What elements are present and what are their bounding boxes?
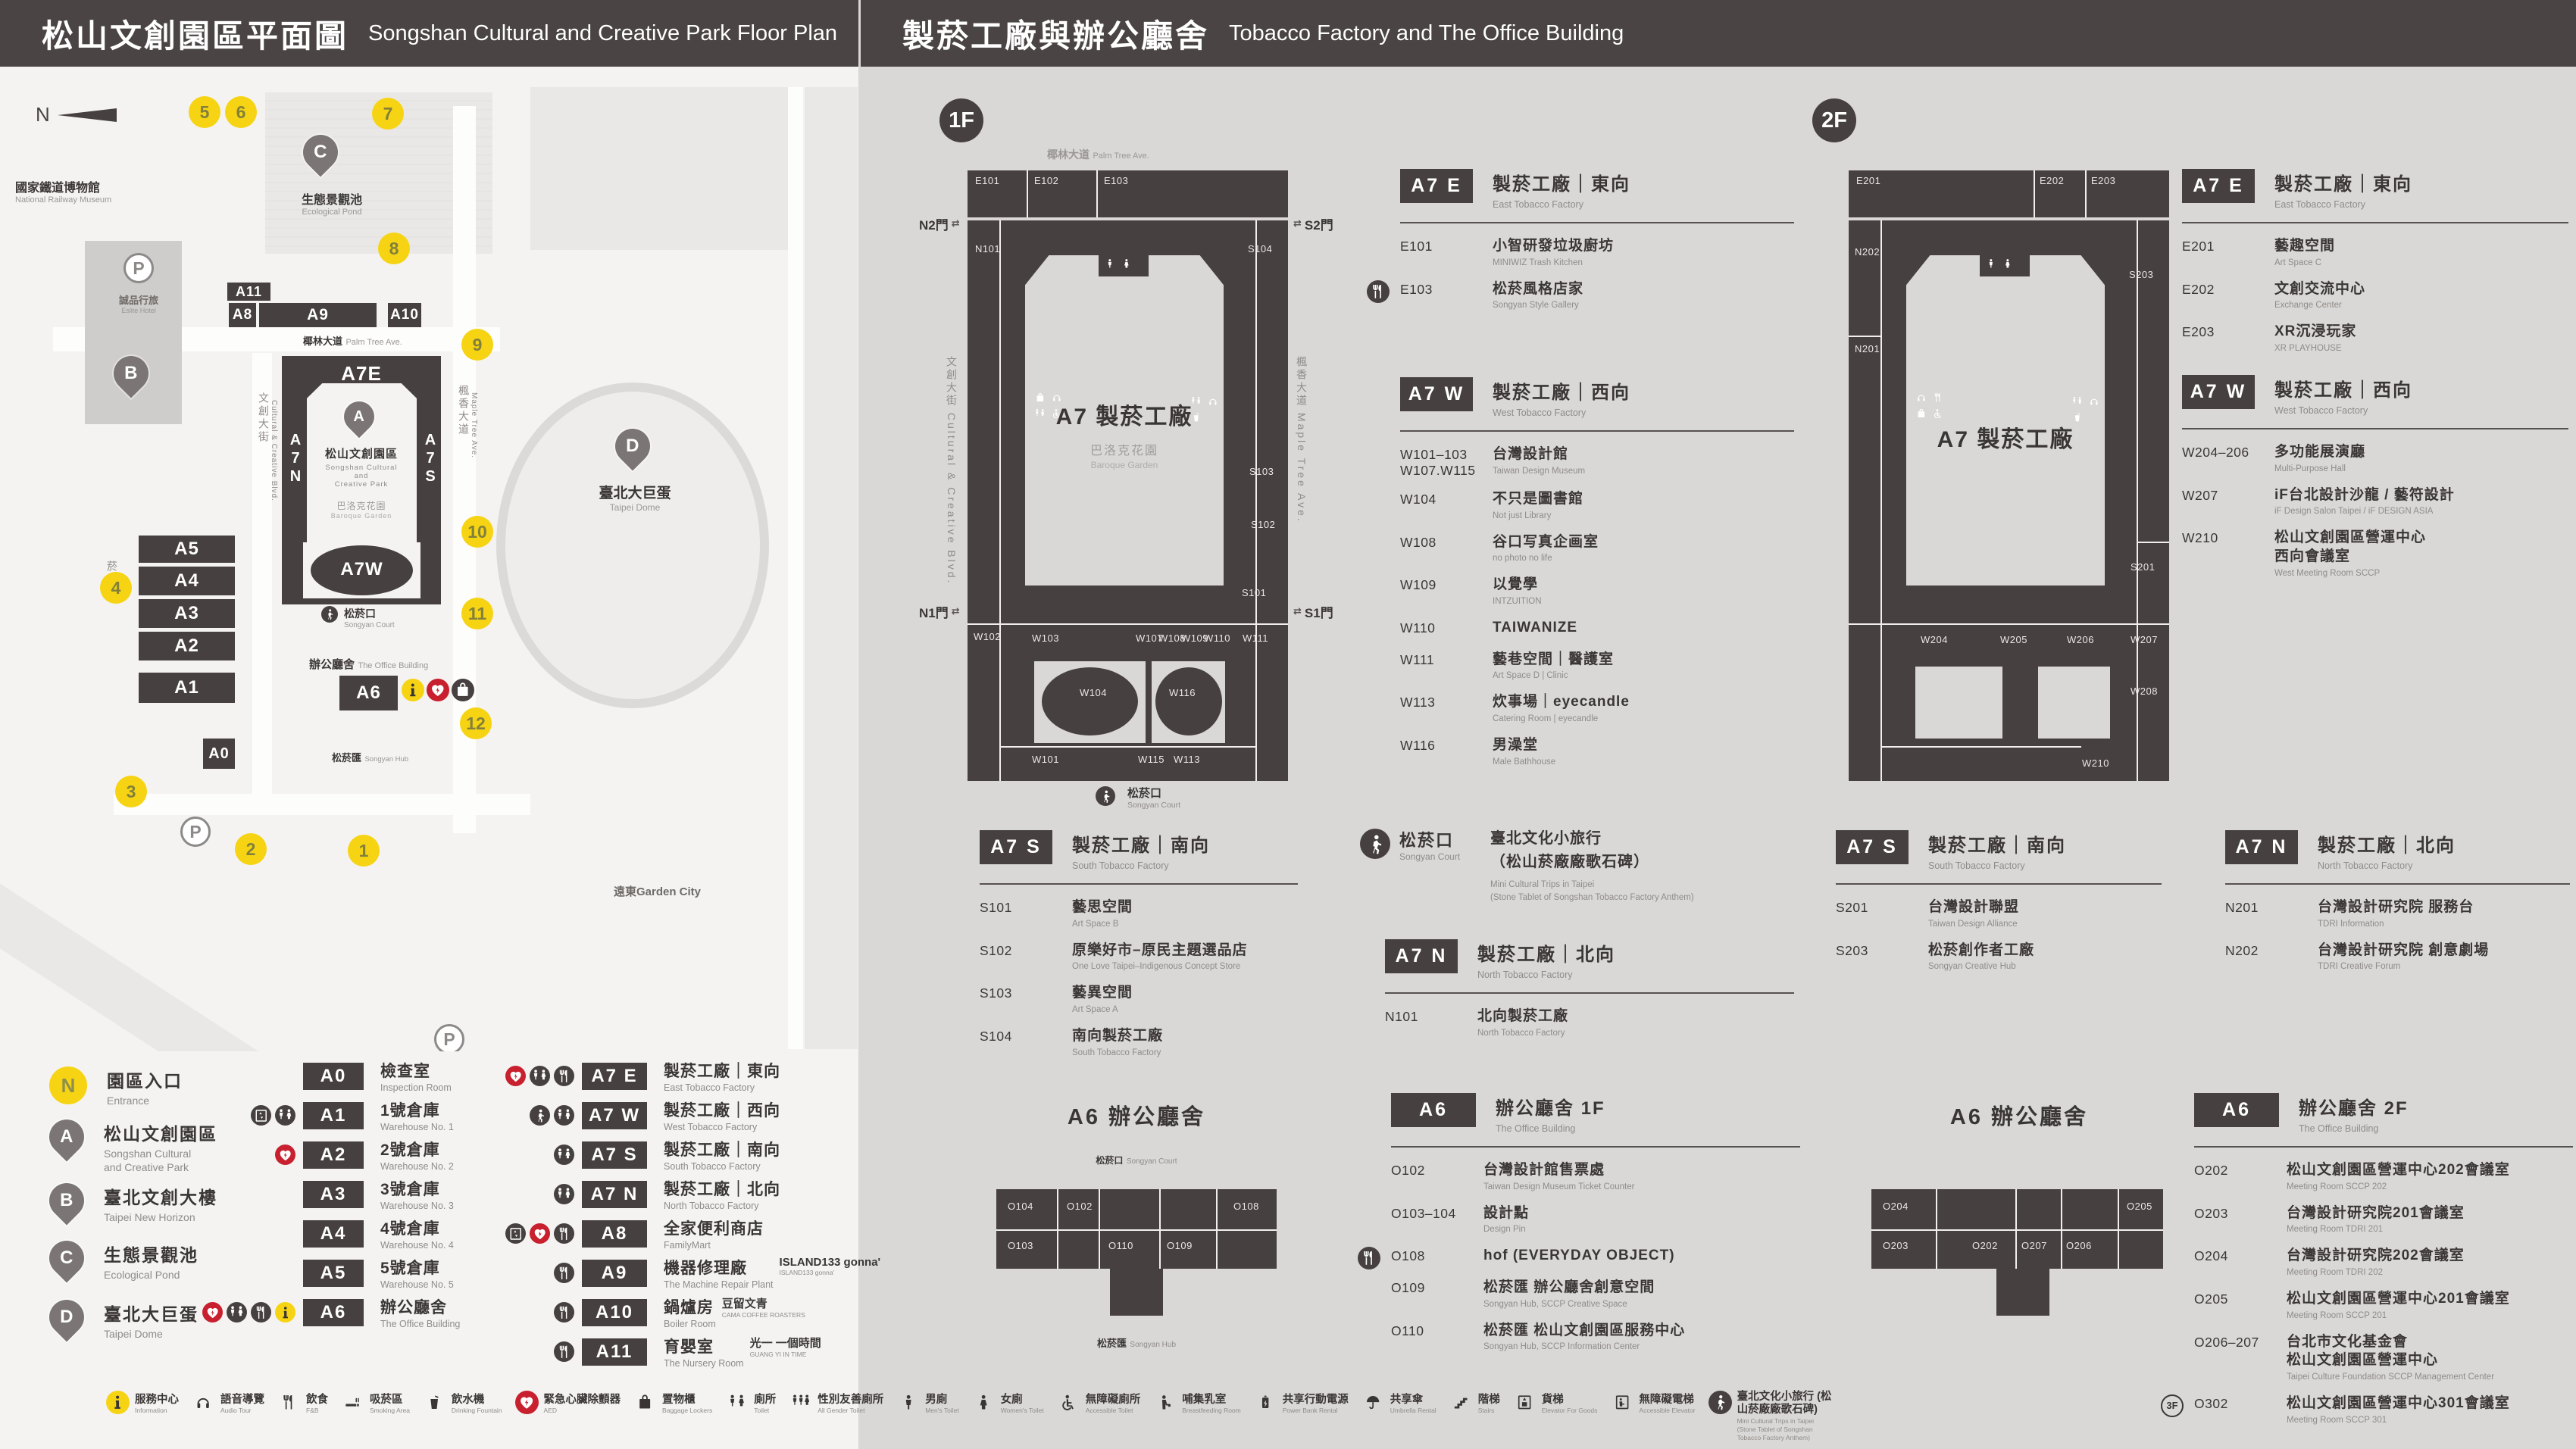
a7s-map-label: A7S bbox=[421, 432, 439, 486]
nursing-icon bbox=[1153, 1391, 1177, 1414]
legend-building-row: A7 S 製菸工廠｜南向 South Tobacco Factory bbox=[468, 1141, 880, 1169]
facility-item: 廁所 Toilet bbox=[725, 1391, 776, 1442]
palm-ave-1f-label: 椰林大道 Palm Tree Ave. bbox=[1047, 147, 1149, 162]
room-entry: W111 藝巷空間｜醫護室 Art Space D | Clinic bbox=[1400, 651, 1794, 682]
room-label: W102 bbox=[974, 631, 1001, 642]
room-label: W101 bbox=[1032, 754, 1059, 765]
building-a11: A11 bbox=[227, 283, 270, 301]
entrance-number: 6 bbox=[225, 96, 257, 128]
room-label: O102 bbox=[1067, 1201, 1093, 1212]
entrance-number: 4 bbox=[100, 572, 132, 604]
pin-b-icon: B bbox=[42, 1176, 91, 1225]
room-entry: O110 松菸匯 松山文創園區服務中心 Songyan Hub, SCCP In… bbox=[1391, 1322, 1800, 1354]
legend-buildings-2: A7 E 製菸工廠｜東向 East Tobacco Factory A7 W 製… bbox=[468, 1062, 880, 1377]
gate-n2: N2門⇄ bbox=[919, 214, 960, 233]
room-entry: W210 松山文創園區營運中心西向會議室 West Meeting Room S… bbox=[2182, 529, 2568, 579]
pin-icon: N bbox=[49, 1066, 87, 1104]
facility-item: 置物櫃 Baggage Lockers bbox=[633, 1391, 712, 1442]
trip-icon bbox=[1708, 1391, 1732, 1414]
parking-icon: P bbox=[180, 817, 211, 847]
person-icon bbox=[1984, 256, 1998, 270]
pin-icon: D bbox=[49, 1300, 84, 1335]
locker-icon bbox=[452, 679, 474, 701]
entrance-number: 1 bbox=[348, 835, 380, 867]
a7e-map-label: A7E bbox=[282, 362, 441, 386]
building-a4: A4 bbox=[139, 567, 235, 595]
entrance-number: 5 bbox=[189, 96, 220, 128]
accelev-icon bbox=[1610, 1391, 1633, 1414]
room-label: E201 bbox=[1856, 175, 1880, 186]
legend-building-row: A9 機器修理廠 The Machine Repair Plant ISLAND… bbox=[468, 1259, 880, 1287]
entrance-number: 11 bbox=[461, 598, 493, 629]
compass: N bbox=[36, 103, 117, 126]
room-entry: N202 台灣設計研究院 創意劇場 TDRI Creative Forum bbox=[2225, 942, 2570, 973]
aed-icon bbox=[505, 1066, 526, 1086]
info-icon bbox=[402, 679, 424, 701]
person-icon bbox=[896, 1391, 920, 1414]
facility-item: 女廁 Women's Toilet bbox=[972, 1391, 1044, 1442]
entrance-n-icon: N bbox=[49, 1066, 87, 1104]
legend-building-row: A5 5號倉庫 Warehouse No. 5 bbox=[182, 1259, 460, 1287]
room-label: S102 bbox=[1251, 519, 1275, 530]
smoking-icon bbox=[341, 1391, 364, 1414]
room-label: E102 bbox=[1034, 175, 1058, 186]
person-icon bbox=[1102, 256, 1117, 270]
legend-building-row: A3 3號倉庫 Warehouse No. 3 bbox=[182, 1180, 460, 1208]
room-entry: W110 TAIWANIZE bbox=[1400, 619, 1794, 639]
facility-item: 性別友善廁所 All Gender Toilet bbox=[789, 1391, 883, 1442]
songyan-court-map bbox=[321, 606, 338, 623]
room-label: O202 bbox=[1972, 1240, 1998, 1251]
room-label: W204 bbox=[1921, 634, 1948, 645]
aed-icon bbox=[515, 1391, 539, 1414]
room-label: S201 bbox=[2131, 561, 2155, 573]
section-a7w-1f: A7 W 製菸工廠｜西向West Tobacco Factory W101–10… bbox=[1400, 377, 1794, 779]
legend-building-row: A10 鍋爐房 Boiler Room 豆留文青CAMA COFFEE ROAS… bbox=[468, 1298, 880, 1326]
room-entry: S101 藝思空間 Art Space B bbox=[980, 898, 1298, 930]
fnb-icon bbox=[554, 1223, 574, 1244]
room-label: W103 bbox=[1032, 632, 1059, 644]
eslite-label: 誠品行旅 Eslite Hotel bbox=[119, 292, 158, 314]
section-a7e-1f: A7 E 製菸工廠｜東向East Tobacco Factory E101 小智… bbox=[1400, 169, 1794, 323]
right-header: 製菸工廠與辦公廳舍 Tobacco Factory and The Office… bbox=[861, 0, 2576, 67]
legend-pin-row: D 臺北大巨蛋 Taipei Dome bbox=[49, 1300, 199, 1341]
room-entry: O205 松山文創園區營運中心201會議室 Meeting Room SCCP … bbox=[2194, 1290, 2573, 1322]
a6-plan-2f: A6 辦公廳舍 O204O205O203O202O207O206 bbox=[1860, 1095, 2178, 1371]
building-a0: A0 bbox=[203, 739, 235, 769]
headset-icon bbox=[192, 1391, 215, 1414]
plan-icon-cluster bbox=[2070, 394, 2102, 424]
room-entry: O108 hof (EVERYDAY OBJECT) bbox=[1391, 1247, 1800, 1267]
facility-item: 共享行動電源 Power Bank Rental bbox=[1254, 1391, 1349, 1442]
facility-item: 飲水機 Drinking Fountain bbox=[423, 1391, 502, 1442]
toilet-icon bbox=[725, 1391, 749, 1414]
court-below-label: 松菸口 Songyan Court bbox=[1127, 785, 1180, 810]
facility-item: 臺北文化小旅行 (松山菸廠廠歌石碑) Mini Cultural Trips i… bbox=[1708, 1391, 1841, 1442]
stairs-icon bbox=[1449, 1391, 1473, 1414]
room-label: S203 bbox=[2129, 269, 2153, 280]
legend-building-row: A2 2號倉庫 Warehouse No. 2 bbox=[182, 1141, 460, 1169]
entrance-number: 7 bbox=[372, 98, 404, 130]
room-label: W115 bbox=[1138, 754, 1165, 765]
facility-item: 男廁 Men's Toilet bbox=[896, 1391, 958, 1442]
room-entry: O204 台灣設計研究院202會議室 Meeting Room TDRI 202 bbox=[2194, 1247, 2573, 1279]
facility-item: 哺集乳室 Breastfeeding Room bbox=[1153, 1391, 1241, 1442]
floor-plan-1f: A7 製菸工廠 巴洛克花園 Baroque Garden N2門⇄ ⇄S2門 N… bbox=[968, 170, 1288, 784]
legend-building-row: A8 全家便利商店 FamilyMart bbox=[468, 1219, 880, 1248]
room-entry: N101 北向製菸工廠 North Tobacco Factory bbox=[1385, 1007, 1794, 1039]
fnb-icon bbox=[251, 1302, 271, 1323]
room-entry: O203 台灣設計研究院201會議室 Meeting Room TDRI 201 bbox=[2194, 1204, 2573, 1236]
room-entry: E103 松菸風格店家 Songyan Style Gallery bbox=[1400, 280, 1794, 312]
building-a8: A8 bbox=[229, 303, 256, 327]
facility-item: 緊急心臟除顫器 AED bbox=[515, 1391, 621, 1442]
room-label: O207 bbox=[2021, 1240, 2047, 1251]
room-label: E103 bbox=[1104, 175, 1128, 186]
room-label: E101 bbox=[975, 175, 999, 186]
city-block bbox=[530, 87, 788, 250]
room-label: S104 bbox=[1248, 243, 1272, 255]
road-diagonal bbox=[0, 839, 275, 1051]
fnb-icon bbox=[554, 1341, 574, 1362]
gate-n1: N1門⇄ bbox=[919, 602, 960, 621]
room-label: E202 bbox=[2040, 175, 2064, 186]
building-a7: A7E A7N A7S A 松山文創園區 Songshan Cultural a… bbox=[282, 356, 441, 604]
entrance-number: 10 bbox=[461, 516, 493, 548]
facility-item: 共享傘 Umbrella Rental bbox=[1361, 1391, 1436, 1442]
room-entry: S103 藝異空間 Art Space A bbox=[980, 984, 1298, 1016]
room-entry: S201 台灣設計聯盟 Taiwan Design Alliance bbox=[1836, 898, 2162, 930]
legend-pin-row: N 園區入口 Entrance bbox=[49, 1066, 183, 1108]
dome-label: 臺北大巨蛋 Taipei Dome bbox=[599, 482, 671, 513]
room-entry: O202 松山文創園區營運中心202會議室 Meeting Room SCCP … bbox=[2194, 1161, 2573, 1193]
room-entry: W104 不只是圖書館 Not just Library bbox=[1400, 490, 1794, 522]
court-map-label: 松菸口 Songyan Court bbox=[344, 606, 395, 629]
facility-item: 無障礙廁所 Accessible Toilet bbox=[1057, 1391, 1141, 1442]
fnb-icon bbox=[1930, 390, 1945, 404]
toilet-icon bbox=[530, 1066, 550, 1086]
pin-d-icon: D bbox=[42, 1292, 91, 1341]
section-a7n-2f: A7 N 製菸工廠｜北向North Tobacco Factory N201 台… bbox=[2225, 830, 2570, 984]
fnb-icon bbox=[1358, 1247, 1380, 1269]
room-label: O203 bbox=[1883, 1240, 1909, 1251]
legend-buildings-1: A0 檢查室 Inspection Room A1 1號倉庫 Warehouse… bbox=[182, 1062, 460, 1338]
toilet-icon bbox=[554, 1105, 574, 1126]
umbrella-icon bbox=[1361, 1391, 1385, 1414]
facility-item: 階梯 Stairs bbox=[1449, 1391, 1500, 1442]
toilet-icon bbox=[554, 1145, 574, 1165]
room-label: O103 bbox=[1008, 1240, 1033, 1251]
room-entry: S104 南向製菸工廠 South Tobacco Factory bbox=[980, 1027, 1298, 1059]
locker-icon bbox=[633, 1391, 657, 1414]
room-entry: W204–206 多功能展演廳 Multi-Purpose Hall bbox=[2182, 443, 2568, 475]
room-label: W207 bbox=[2131, 634, 2158, 645]
locker-icon bbox=[1914, 406, 1928, 420]
room-entry: 3F O302 松山文創園區營運中心301會議室 Meeting Room SC… bbox=[2194, 1394, 2573, 1426]
accessible-icon bbox=[1057, 1391, 1080, 1414]
room-label: W116 bbox=[1169, 687, 1196, 698]
cultural-blvd-1f: 文創大街 Cultural & Creative Blvd. bbox=[944, 356, 959, 553]
building-a3: A3 bbox=[139, 599, 235, 628]
toilet-icon bbox=[275, 1105, 295, 1126]
section-songyan-court: 松菸口 Songyan Court 臺北文化小旅行（松山菸廠廠歌石碑） Mini… bbox=[1360, 827, 1796, 933]
cultural-blvd-label: 文創大街 bbox=[256, 392, 271, 574]
headset-icon bbox=[2087, 394, 2101, 408]
building-a5: A5 bbox=[139, 536, 235, 563]
facility-item: 飲食 F&B bbox=[277, 1391, 328, 1442]
room-entry: E202 文創交流中心 Exchange Center bbox=[2182, 280, 2568, 312]
hub-map-label: 松菸匯 Songyan Hub bbox=[332, 750, 408, 765]
women-icon bbox=[2000, 256, 2015, 270]
road bbox=[788, 87, 803, 1049]
section-a6-2f: A6 辦公廳舍 2FThe Office Building O202 松山文創園… bbox=[2194, 1093, 2573, 1437]
building-a1: A1 bbox=[139, 673, 235, 703]
accessible-icon bbox=[1930, 406, 1945, 420]
toilet-icon bbox=[554, 1184, 574, 1204]
room-label: W206 bbox=[2067, 634, 2094, 645]
fnb-icon bbox=[554, 1066, 574, 1086]
legend-building-row: A11 育嬰室 The Nursery Room 光一 一個時間GUANG YI… bbox=[468, 1338, 880, 1366]
room-label: O205 bbox=[2127, 1201, 2152, 1212]
entrance-number: 12 bbox=[460, 707, 492, 739]
room-label: W205 bbox=[2000, 634, 2027, 645]
headset-icon bbox=[1914, 390, 1928, 404]
room-label: E203 bbox=[2091, 175, 2115, 186]
legend-building-row: A0 檢查室 Inspection Room bbox=[182, 1062, 460, 1090]
aed-icon bbox=[275, 1145, 295, 1165]
room-label: O104 bbox=[1008, 1201, 1033, 1212]
pond-label: 生態景觀池 Ecological Pond bbox=[302, 189, 362, 217]
room-label: W210 bbox=[2082, 757, 2109, 769]
locker-icon bbox=[1033, 390, 1047, 404]
elevator-icon bbox=[505, 1223, 526, 1244]
legend-building-row: A7 E 製菸工廠｜東向 East Tobacco Factory bbox=[468, 1062, 880, 1090]
room-entry: O103–104 設計點 Design Pin bbox=[1391, 1204, 1800, 1236]
legend-building-row: A7 N 製菸工廠｜北向 North Tobacco Factory bbox=[468, 1180, 880, 1208]
room-entry: W108 谷口写真企画室 no photo no life bbox=[1400, 533, 1794, 565]
pin-icon: C bbox=[49, 1241, 84, 1276]
right-title-en: Tobacco Factory and The Office Building bbox=[1229, 21, 1624, 46]
pin-icon: B bbox=[49, 1183, 84, 1218]
room-entry: W109 以覺學 INTZUITION bbox=[1400, 576, 1794, 607]
a6-map-icons bbox=[402, 679, 474, 701]
facility-item: 服務中心 Information bbox=[106, 1391, 179, 1442]
room-entry: N201 台灣設計研究院 服務台 TDRI Information bbox=[2225, 898, 2570, 930]
section-a7w-2f: A7 W 製菸工廠｜西向West Tobacco Factory W204–20… bbox=[2182, 375, 2568, 591]
room-label: N202 bbox=[1855, 246, 1880, 258]
office-map-label: 辦公廳舍 The Office Building bbox=[309, 656, 428, 672]
toilet-icon bbox=[227, 1302, 247, 1323]
room-entry: E201 藝趣空間 Art Space C bbox=[2182, 237, 2568, 269]
room-entry: W113 炊事場｜eyecandle Catering Room | eyeca… bbox=[1400, 693, 1794, 725]
compass-arrow-icon bbox=[58, 108, 117, 122]
room-label: N201 bbox=[1855, 343, 1880, 354]
section-a7e-2f: A7 E 製菸工廠｜東向East Tobacco Factory E201 藝趣… bbox=[2182, 169, 2568, 366]
compass-n: N bbox=[36, 103, 50, 126]
facility-item: 語音導覽 Audio Tour bbox=[192, 1391, 264, 1442]
room-label: N101 bbox=[975, 243, 1000, 255]
maple-ave-1f: 楓香大道 Maple Tree Ave. bbox=[1294, 356, 1309, 553]
a7w-map-label: A7W bbox=[311, 559, 413, 580]
city-block bbox=[805, 87, 858, 1049]
legend-building-row: A4 4號倉庫 Warehouse No. 4 bbox=[182, 1219, 460, 1248]
toilet-icon bbox=[1033, 406, 1047, 420]
left-header: 松山文創園區平面圖 Songshan Cultural and Creative… bbox=[0, 0, 858, 67]
right-title-zh: 製菸工廠與辦公廳舍 bbox=[902, 11, 1209, 57]
room-label: W113 bbox=[1174, 754, 1200, 765]
road bbox=[114, 794, 530, 815]
pin-icon: A bbox=[49, 1120, 84, 1154]
facility-item: 貨梯 Elevator For Goods bbox=[1513, 1391, 1598, 1442]
legend-building-row: A6 辦公廳舍 The Office Building bbox=[182, 1298, 460, 1326]
building-a2: A2 bbox=[139, 632, 235, 660]
aed-icon bbox=[427, 679, 449, 701]
garden-city-label: 遠東Garden City bbox=[614, 883, 701, 899]
legend-building-row: A7 W 製菸工廠｜西向 West Tobacco Factory bbox=[468, 1101, 880, 1129]
headset-icon bbox=[1205, 394, 1220, 408]
section-a7n-1f: A7 N 製菸工廠｜北向North Tobacco Factory N101 北… bbox=[1385, 939, 1794, 1051]
floor-plan-2f: A7 製菸工廠 E201E202E203N202N201S203S201W204… bbox=[1849, 170, 2169, 784]
fnb-icon bbox=[277, 1391, 301, 1414]
plan-icon-cluster bbox=[1189, 394, 1221, 424]
building-a10: A10 bbox=[388, 303, 421, 327]
fnb-icon bbox=[554, 1263, 574, 1283]
allgender-icon bbox=[789, 1391, 812, 1414]
facility-item: 吸菸區 Smoking Area bbox=[341, 1391, 410, 1442]
court-below-plan bbox=[1096, 786, 1115, 806]
room-label: O109 bbox=[1167, 1240, 1193, 1251]
pin-c-icon: C bbox=[42, 1233, 91, 1282]
room-label: W208 bbox=[2131, 685, 2158, 697]
room-entry: W101–103W107.W115 台灣設計館 Taiwan Design Mu… bbox=[1400, 445, 1794, 479]
building-a9: A9 bbox=[259, 303, 377, 327]
fnb-icon bbox=[554, 1302, 574, 1323]
aed-icon bbox=[202, 1302, 223, 1323]
left-title-en: Songshan Cultural and Creative Park Floo… bbox=[368, 21, 837, 46]
trip-icon bbox=[530, 1105, 550, 1126]
room-label: W110 bbox=[1204, 632, 1230, 644]
room-entry: S102 原樂好市–原民主題選品店 One Love Taipei–Indige… bbox=[980, 942, 1298, 973]
building-a6: A6 bbox=[339, 676, 398, 710]
legend-pin-row: C 生態景觀池 Ecological Pond bbox=[49, 1241, 199, 1282]
room-label: O110 bbox=[1108, 1240, 1133, 1251]
a6-plan-1f: A6 辦公廳舍 松菸口 Songyan Court 松菸匯 Songyan Hu… bbox=[985, 1095, 1288, 1371]
room-entry: E101 小智研發垃圾廚坊 MINIWIZ Trash Kitchen bbox=[1400, 237, 1794, 269]
room-label: S101 bbox=[1242, 587, 1266, 598]
info-icon bbox=[106, 1391, 130, 1414]
left-title-zh: 松山文創園區平面圖 bbox=[42, 11, 349, 57]
pin-a-icon: A bbox=[42, 1112, 91, 1161]
room-label: O204 bbox=[1883, 1201, 1909, 1212]
parking-icon: P bbox=[434, 1024, 464, 1051]
entrance-number: 8 bbox=[378, 233, 410, 264]
women-icon bbox=[1119, 256, 1133, 270]
section-a6-1f: A6 辦公廳舍 1FThe Office Building O102 台灣設計館… bbox=[1391, 1093, 1800, 1364]
elevator-icon bbox=[251, 1105, 271, 1126]
cultural-blvd-en: Cultural & Creative Blvd. bbox=[270, 400, 278, 582]
palm-ave-label: 椰林大道 Palm Tree Ave. bbox=[303, 333, 402, 348]
section-a7s-2f: A7 S 製菸工廠｜南向South Tobacco Factory S201 台… bbox=[1836, 830, 2162, 984]
entrance-number: 3 bbox=[115, 776, 147, 807]
plan-icon-cluster bbox=[1984, 256, 2015, 270]
facility-item: 無障礙電梯 Accessible Elevator bbox=[1610, 1391, 1695, 1442]
park-name-label: 松山文創園區 Songshan Cultural and Creative Pa… bbox=[322, 445, 402, 520]
legend-building-row: A1 1號倉庫 Warehouse No. 1 bbox=[182, 1101, 460, 1129]
room-label: W104 bbox=[1080, 687, 1107, 698]
room-label: O108 bbox=[1233, 1201, 1259, 1212]
gate-s2: ⇄S2門 bbox=[1293, 214, 1333, 233]
room-entry: W207 iF台北設計沙龍 / 藝符設計 iF Design Salon Tai… bbox=[2182, 486, 2568, 518]
goods-icon bbox=[1513, 1391, 1537, 1414]
powerbank-icon bbox=[1254, 1391, 1277, 1414]
water-icon bbox=[423, 1391, 446, 1414]
room-entry: E203 XR沉浸玩家 XR PLAYHOUSE bbox=[2182, 323, 2568, 354]
room-label: W111 bbox=[1243, 632, 1268, 644]
railway-museum-label: 國家鐵道博物館 National Railway Museum bbox=[15, 177, 111, 205]
park-overview-map: N 國家鐵道博物館 National Railway Museum C 生態景觀… bbox=[0, 67, 858, 1051]
room-entry: O102 台灣設計館售票處 Taiwan Design Museum Ticke… bbox=[1391, 1161, 1800, 1193]
maple-ave-label: 楓香大道 bbox=[456, 385, 471, 536]
entrance-number: 2 bbox=[235, 833, 267, 865]
fnb-icon bbox=[1367, 280, 1390, 303]
plan-icon-cluster bbox=[1102, 256, 1134, 270]
toilet-icon bbox=[2070, 394, 2084, 408]
section-a7s-1f: A7 S 製菸工廠｜南向South Tobacco Factory S101 藝… bbox=[980, 830, 1298, 1070]
room-entry: W116 男澡堂 Male Bathhouse bbox=[1400, 736, 1794, 768]
aed-icon bbox=[530, 1223, 550, 1244]
plan-icon-cluster bbox=[1914, 390, 1946, 420]
room-label: O206 bbox=[2066, 1240, 2092, 1251]
gate-s1: ⇄S1門 bbox=[1293, 602, 1333, 621]
facility-legend-strip: 服務中心 Information 語音導覽 Audio Tour 飲食 F&B bbox=[106, 1391, 1515, 1442]
floor-1f-badge: 1F bbox=[939, 98, 983, 142]
parking-icon: P bbox=[123, 253, 154, 283]
women-icon bbox=[972, 1391, 996, 1414]
entrance-number: 9 bbox=[461, 329, 493, 361]
room-entry: S203 松菸創作者工廠 Songyan Creative Hub bbox=[1836, 942, 2162, 973]
floor-2f-badge: 2F bbox=[1812, 98, 1856, 142]
room-entry: O206–207 台北市文化基金會松山文創園區營運中心 Taipei Cultu… bbox=[2194, 1333, 2573, 1383]
info-icon bbox=[275, 1302, 295, 1323]
room-entry: O109 松菸匯 辦公廳舍創意空間 Songyan Hub, SCCP Crea… bbox=[1391, 1279, 1800, 1310]
a7n-map-label: A7N bbox=[286, 432, 304, 486]
room-label: S103 bbox=[1249, 466, 1274, 477]
